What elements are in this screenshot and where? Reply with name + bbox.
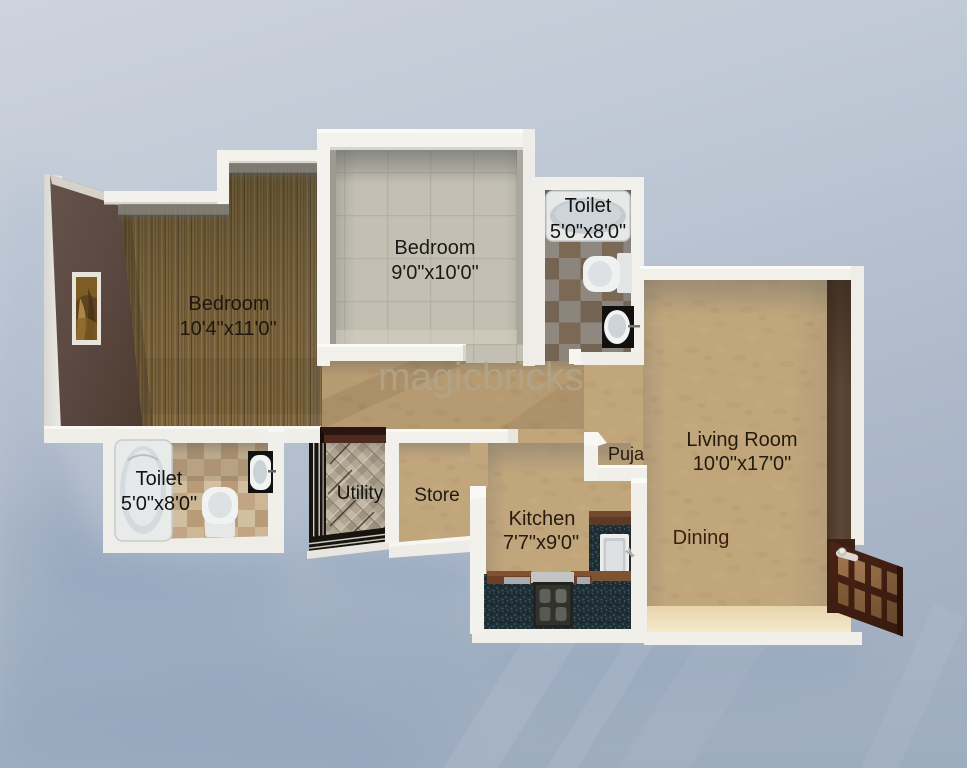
svg-text:7'7"x9'0": 7'7"x9'0" <box>503 532 579 554</box>
svg-text:Toilet: Toilet <box>136 468 183 490</box>
svg-text:Living Room: Living Room <box>686 429 797 451</box>
svg-text:Puja: Puja <box>608 444 645 464</box>
svg-text:Dining: Dining <box>673 527 730 549</box>
svg-text:9'0"x10'0": 9'0"x10'0" <box>391 262 478 284</box>
svg-text:10'0"x17'0": 10'0"x17'0" <box>693 453 792 475</box>
svg-text:5'0"x8'0": 5'0"x8'0" <box>121 493 197 515</box>
svg-text:Kitchen: Kitchen <box>509 508 576 530</box>
svg-text:Bedroom: Bedroom <box>188 293 269 315</box>
svg-text:Utility: Utility <box>337 483 384 504</box>
svg-text:magicbricks: magicbricks <box>378 356 584 399</box>
svg-text:Store: Store <box>414 485 459 506</box>
svg-text:Bedroom: Bedroom <box>394 237 475 259</box>
svg-text:Toilet: Toilet <box>565 195 612 217</box>
svg-text:10'4"x11'0": 10'4"x11'0" <box>179 318 276 340</box>
svg-text:5'0"x8'0": 5'0"x8'0" <box>550 221 626 243</box>
